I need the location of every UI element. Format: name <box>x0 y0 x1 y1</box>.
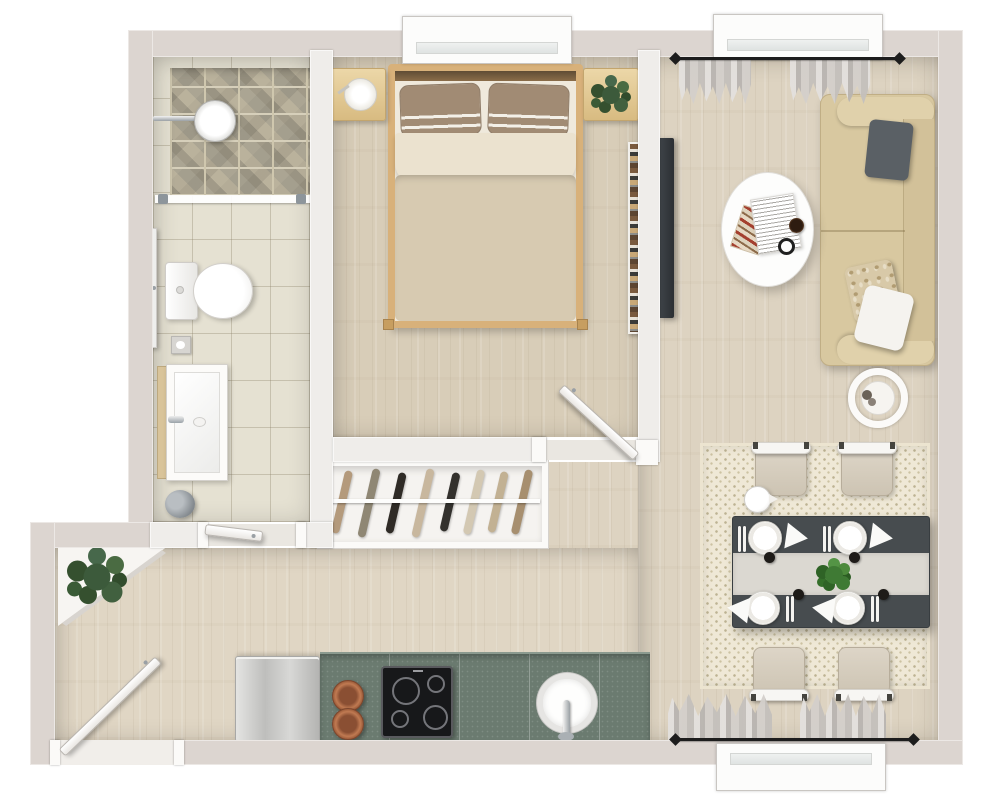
wall-left-upper <box>128 30 153 548</box>
cutlery[interactable] <box>786 596 789 622</box>
napkin[interactable] <box>784 523 809 552</box>
wall-bedroom-living <box>638 50 660 462</box>
shower-glass-partition[interactable] <box>155 195 310 203</box>
cutlery[interactable] <box>876 596 879 622</box>
cutlery[interactable] <box>743 526 746 552</box>
curtain-rod[interactable] <box>676 738 914 741</box>
table-lamp[interactable] <box>344 78 377 111</box>
toilet-bowl[interactable] <box>193 263 253 319</box>
side-table-item <box>868 398 876 406</box>
cutlery[interactable] <box>738 526 741 552</box>
dining-chair[interactable] <box>837 444 897 500</box>
plate[interactable] <box>833 521 867 555</box>
door-jamb <box>296 522 306 548</box>
napkin[interactable] <box>810 595 835 624</box>
dining-window[interactable] <box>716 743 886 791</box>
sofa-cushion-gray[interactable] <box>864 119 914 181</box>
wall-bathroom-bedroom <box>310 50 333 548</box>
sink-faucet[interactable] <box>168 416 184 423</box>
napkin[interactable] <box>725 595 750 624</box>
sofa-seat-seam <box>821 230 905 232</box>
copper-pan[interactable] <box>332 708 364 740</box>
nightstand-plant[interactable] <box>602 86 620 104</box>
coffee-cup[interactable] <box>789 218 804 233</box>
bed-pillow[interactable] <box>399 83 482 138</box>
induction-cooktop[interactable] <box>381 666 453 738</box>
sink-drain <box>193 417 206 427</box>
shower-head[interactable] <box>194 100 236 142</box>
espresso-cup[interactable] <box>878 589 889 600</box>
cooktop-controls <box>413 670 423 672</box>
bedroom-window[interactable] <box>402 16 572 64</box>
tv[interactable] <box>658 138 674 318</box>
duvet[interactable] <box>395 175 576 321</box>
door-jamb <box>636 440 658 465</box>
bed-post <box>577 319 588 330</box>
bed-pillow[interactable] <box>487 83 570 138</box>
floor-plan <box>0 0 1000 806</box>
espresso-cup[interactable] <box>764 552 775 563</box>
bedroom-door-hall-floor <box>546 462 638 548</box>
wall-left-lower <box>30 522 55 765</box>
double-bed[interactable] <box>388 64 583 328</box>
sofa[interactable] <box>820 94 935 366</box>
teapot-spout <box>769 494 778 504</box>
door-jamb <box>532 437 546 462</box>
herb-centerpiece[interactable] <box>825 566 843 584</box>
dining-chair[interactable] <box>749 643 809 699</box>
wall-right <box>938 30 963 765</box>
window-glass <box>416 42 557 54</box>
espresso-cup[interactable] <box>849 552 860 563</box>
espresso-cup[interactable] <box>793 589 804 600</box>
bed-post <box>383 319 394 330</box>
headboard <box>395 71 576 81</box>
cutlery[interactable] <box>828 526 831 552</box>
door-jamb <box>50 740 60 765</box>
wall-bedroom-bottom <box>333 437 546 462</box>
waste-bin[interactable] <box>165 490 195 518</box>
curtain-rod[interactable] <box>676 57 900 60</box>
entry-plant[interactable] <box>84 564 111 591</box>
shower-hinge <box>158 194 168 204</box>
window-glass <box>727 39 868 50</box>
cutlery[interactable] <box>871 596 874 622</box>
clothes-rail <box>326 499 540 503</box>
kitchen-counter[interactable] <box>320 652 650 742</box>
plate[interactable] <box>746 591 780 625</box>
refrigerator[interactable] <box>235 656 320 742</box>
plate[interactable] <box>831 591 865 625</box>
living-room-window[interactable] <box>713 14 883 60</box>
door-jamb <box>174 740 184 765</box>
dining-chair[interactable] <box>834 643 894 699</box>
shower-floor <box>170 68 310 196</box>
cutlery[interactable] <box>791 596 794 622</box>
shower-hinge <box>296 194 306 204</box>
plate[interactable] <box>748 521 782 555</box>
alarm-clock[interactable] <box>778 238 795 255</box>
teapot[interactable] <box>744 486 771 513</box>
toilet-paper-roll <box>176 341 185 349</box>
cutlery[interactable] <box>823 526 826 552</box>
window-glass <box>730 753 871 765</box>
napkin[interactable] <box>869 523 894 552</box>
toilet-flush-button[interactable] <box>176 286 184 294</box>
